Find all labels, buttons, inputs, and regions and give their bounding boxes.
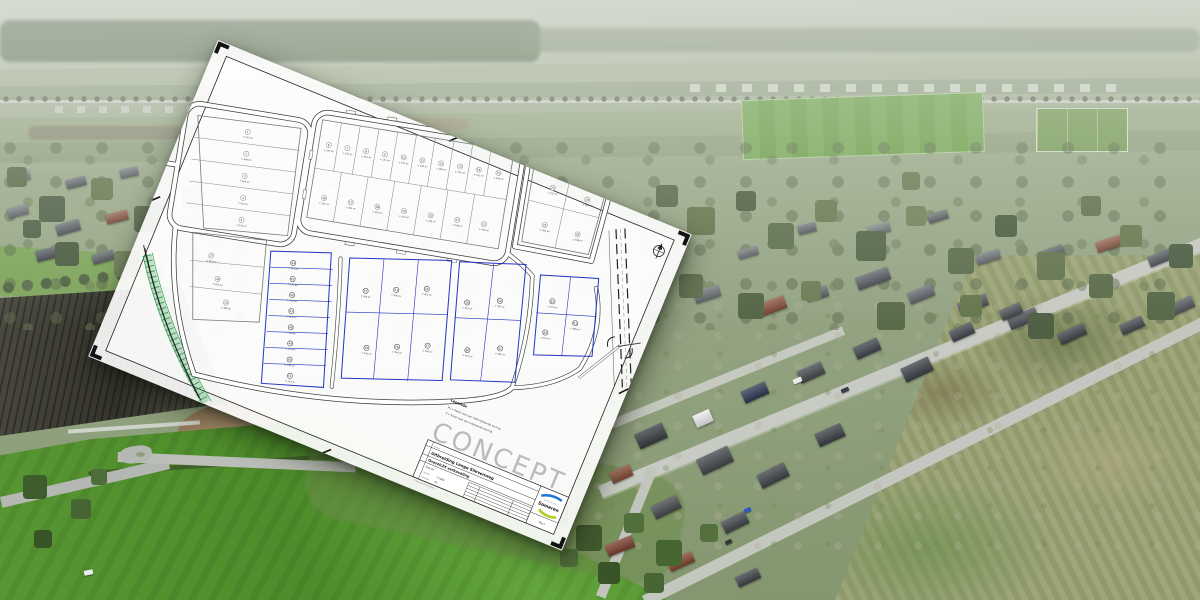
lot-label: 24± 540 m² — [582, 196, 594, 208]
tree-cluster — [6, 148, 8, 150]
far-buildings-row — [690, 84, 1120, 92]
distant-road-trees — [0, 94, 1200, 105]
tree-cluster — [660, 165, 662, 167]
garden-texture — [590, 300, 1200, 570]
house-roof — [735, 567, 761, 587]
screenshot-root: 1± 512 m²2± 490 m²3± 505 m²4± 520 m²5± 5… — [0, 0, 1200, 600]
distant-treeline — [0, 20, 540, 62]
distant-treeline — [520, 28, 1200, 52]
roadside-trees — [28, 468, 30, 470]
traffic-island — [136, 452, 145, 457]
